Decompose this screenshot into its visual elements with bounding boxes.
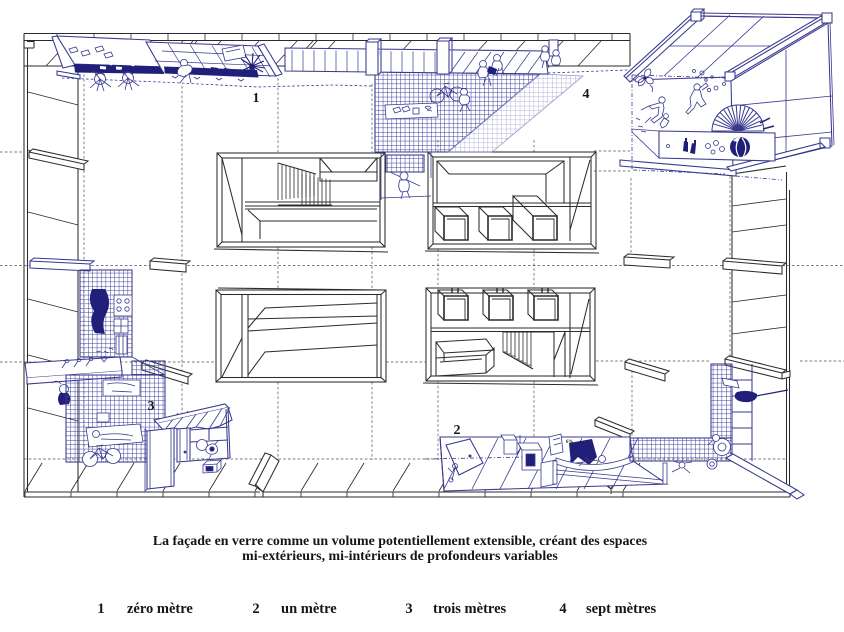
svg-text:un mètre: un mètre xyxy=(281,601,337,617)
svg-text:4: 4 xyxy=(559,601,566,617)
svg-text:2: 2 xyxy=(454,423,461,438)
svg-text:4: 4 xyxy=(583,87,590,102)
svg-text:1: 1 xyxy=(253,91,260,106)
svg-text:zéro mètre: zéro mètre xyxy=(127,601,193,617)
svg-text:3: 3 xyxy=(148,399,155,414)
svg-text:mi-extérieurs, mi-intérieurs d: mi-extérieurs, mi-intérieurs de profonde… xyxy=(242,549,558,564)
svg-text:La façade en verre comme un vo: La façade en verre comme un volume poten… xyxy=(153,534,648,549)
svg-text:1: 1 xyxy=(97,601,104,617)
svg-text:2: 2 xyxy=(252,601,259,617)
svg-text:sept mètres: sept mètres xyxy=(586,601,657,617)
svg-text:trois mètres: trois mètres xyxy=(433,601,507,617)
svg-text:3: 3 xyxy=(405,601,412,617)
